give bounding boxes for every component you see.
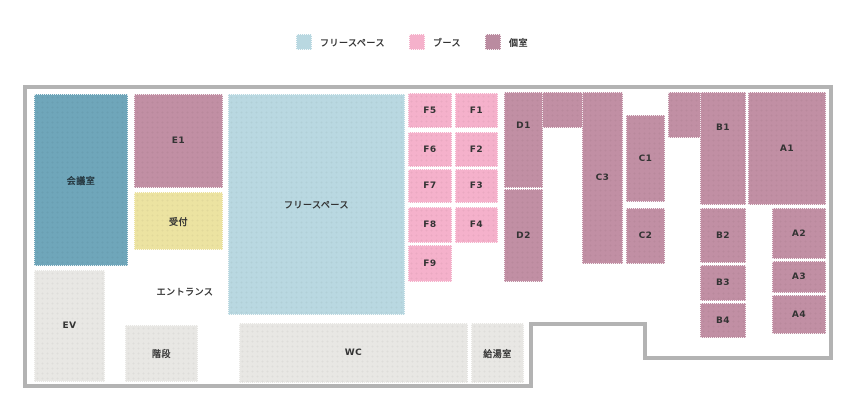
room-reception: 受付 xyxy=(134,192,223,250)
room-a4-label: A4 xyxy=(792,310,806,320)
room-f2-label: F2 xyxy=(470,145,483,155)
room-a2-label: A2 xyxy=(792,229,806,239)
room-e1: E1 xyxy=(134,94,223,188)
room-e1-label: E1 xyxy=(172,136,185,146)
room-b2: B2 xyxy=(700,208,746,263)
room-a2: A2 xyxy=(772,208,826,259)
free-space-swatch-icon xyxy=(296,34,312,50)
room-c2: C2 xyxy=(626,208,665,264)
floor-plan: 会議室 E1 受付 フリースペース F5 F1 F6 F2 F7 F3 F8 F… xyxy=(23,85,833,391)
room-a1-label: A1 xyxy=(780,144,794,154)
room-f2: F2 xyxy=(455,132,498,167)
room-stairs: 階段 xyxy=(125,325,198,382)
room-f5-label: F5 xyxy=(423,106,436,116)
room-f7-label: F7 xyxy=(423,181,436,191)
room-f6-label: F6 xyxy=(423,145,436,155)
room-d2-label: D2 xyxy=(516,231,531,241)
legend-label-private-room: 個室 xyxy=(509,36,528,49)
room-d2: D2 xyxy=(504,189,543,282)
room-free-space-label: フリースペース xyxy=(284,198,349,211)
room-c1: C1 xyxy=(626,115,665,202)
room-wc: WC xyxy=(239,323,468,383)
room-c2-label: C2 xyxy=(639,231,653,241)
room-f9: F9 xyxy=(408,245,452,282)
room-wc-label: WC xyxy=(345,348,363,358)
room-f4-label: F4 xyxy=(470,220,483,230)
room-b3-label: B3 xyxy=(716,278,730,288)
room-kitchenette: 給湯室 xyxy=(471,323,524,383)
room-free-space: フリースペース xyxy=(228,94,405,315)
legend-label-booth: ブース xyxy=(433,36,461,49)
room-b2-label: B2 xyxy=(716,231,730,241)
room-b1-label: B1 xyxy=(700,123,746,133)
room-f3: F3 xyxy=(455,169,498,203)
room-f3-label: F3 xyxy=(470,181,483,191)
legend-label-free-space: フリースペース xyxy=(320,36,385,49)
room-f8-label: F8 xyxy=(423,220,436,230)
room-meeting: 会議室 xyxy=(34,94,128,266)
room-a1: A1 xyxy=(748,92,826,205)
room-f8: F8 xyxy=(408,207,452,243)
room-f6: F6 xyxy=(408,132,452,167)
legend-item-free-space: フリースペース xyxy=(296,34,385,50)
room-b1 xyxy=(700,92,746,205)
legend-item-private-room: 個室 xyxy=(485,34,528,50)
room-c3-label: C3 xyxy=(596,173,610,183)
room-reception-label: 受付 xyxy=(169,215,188,228)
room-a4: A4 xyxy=(772,295,826,334)
room-b4-label: B4 xyxy=(716,316,730,326)
private-room-swatch-icon xyxy=(485,34,501,50)
room-b3: B3 xyxy=(700,265,746,301)
room-elevator: EV xyxy=(34,270,105,382)
room-f5: F5 xyxy=(408,93,452,128)
booth-swatch-icon xyxy=(409,34,425,50)
room-a3: A3 xyxy=(772,261,826,293)
room-d1 xyxy=(504,92,543,188)
room-b4: B4 xyxy=(700,303,746,338)
room-d1-label: D1 xyxy=(504,121,543,131)
room-f9-label: F9 xyxy=(423,259,436,269)
room-c3: C3 xyxy=(582,92,623,264)
room-a3-label: A3 xyxy=(792,272,806,282)
room-elevator-label: EV xyxy=(62,321,76,331)
room-kitchenette-label: 給湯室 xyxy=(483,347,512,360)
room-stairs-label: 階段 xyxy=(152,347,171,360)
room-f1-label: F1 xyxy=(470,106,483,116)
room-c1-label: C1 xyxy=(639,154,653,164)
entrance-label: エントランス xyxy=(135,285,235,298)
legend-item-booth: ブース xyxy=(409,34,461,50)
room-f4: F4 xyxy=(455,207,498,243)
room-f1: F1 xyxy=(455,93,498,128)
room-f7: F7 xyxy=(408,169,452,203)
legend: フリースペース ブース 個室 xyxy=(296,33,528,51)
room-meeting-label: 会議室 xyxy=(67,174,96,187)
